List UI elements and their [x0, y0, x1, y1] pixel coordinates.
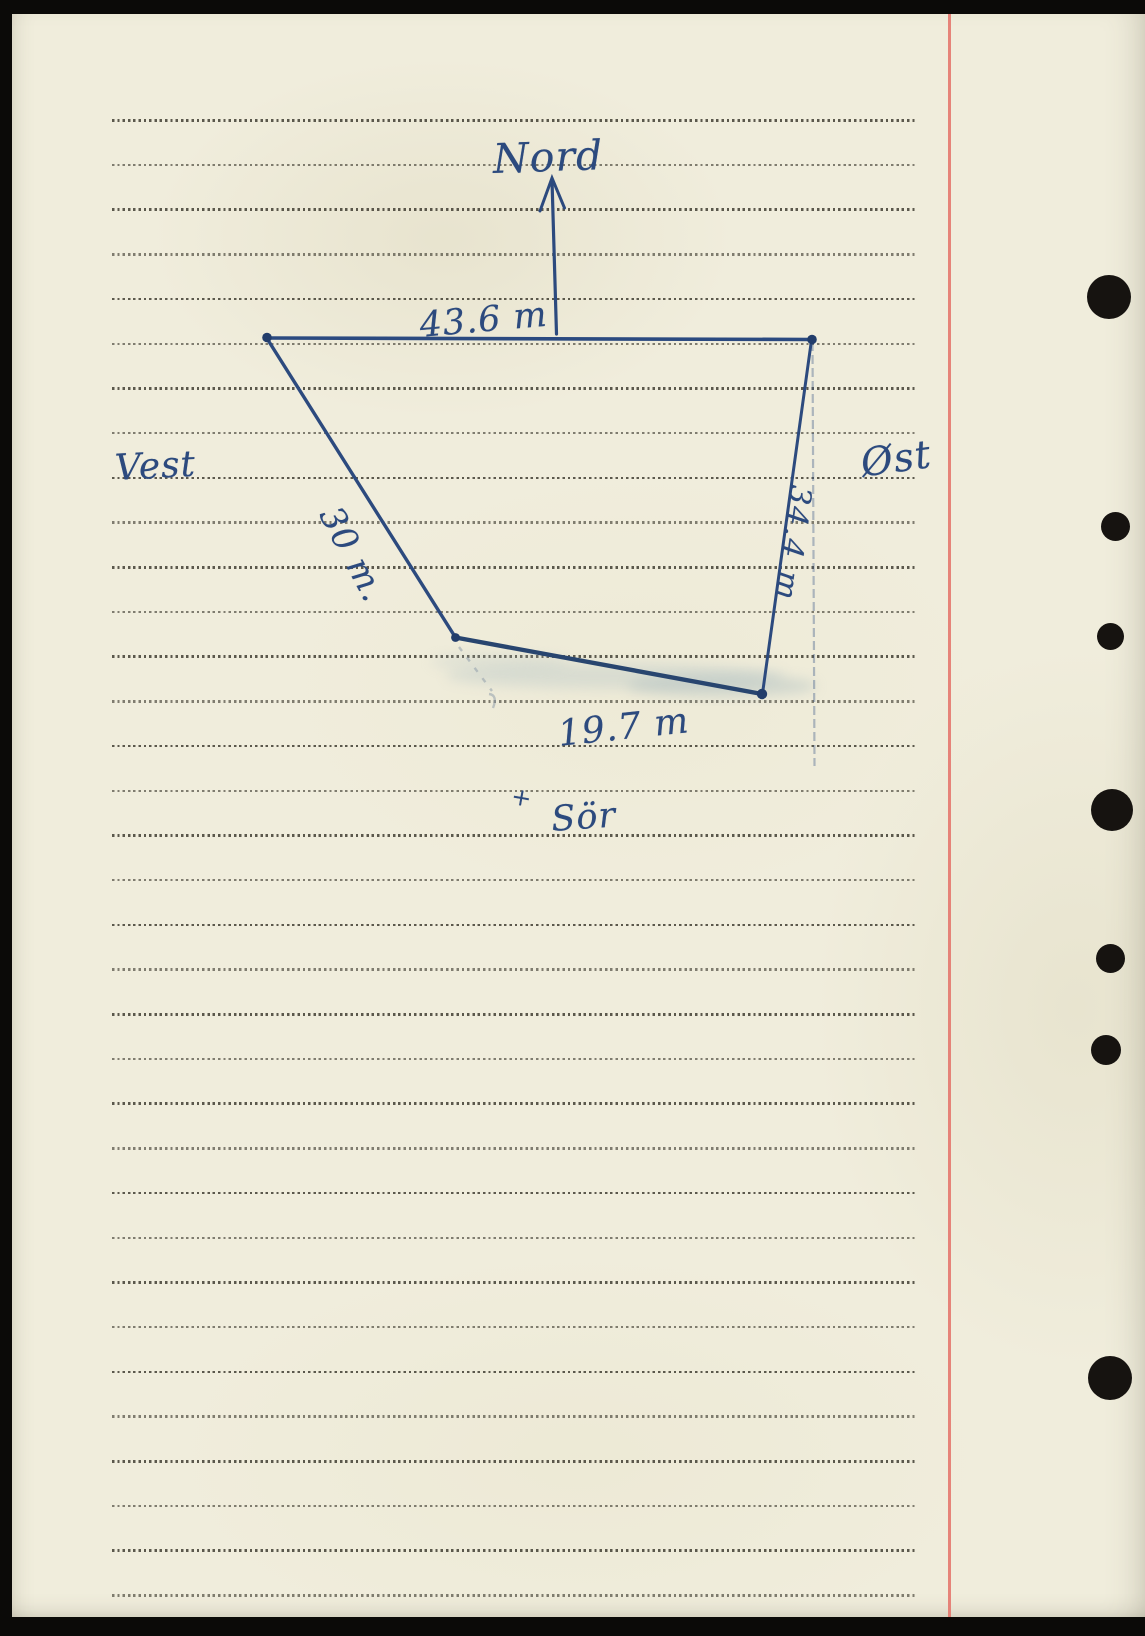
- punch-hole: [1088, 1356, 1132, 1400]
- south-label: Sör: [550, 795, 617, 839]
- punch-hole: [1097, 623, 1124, 650]
- scan-border-bottom: [0, 1617, 1145, 1636]
- scan-border-left: [0, 0, 12, 1636]
- punch-hole: [1101, 512, 1130, 541]
- punch-hole: [1096, 944, 1125, 973]
- south-direction-line: [813, 342, 815, 766]
- plot-side-north: [267, 338, 812, 340]
- paper: Nord 43.6 m Vest Øst 30 m. 34.4 m 19.7 m…: [12, 14, 1145, 1617]
- scan-border-top: [0, 0, 1145, 14]
- punch-hole: [1087, 275, 1131, 319]
- punch-hole: [1091, 789, 1133, 831]
- west-label: Vest: [114, 444, 197, 489]
- punch-hole: [1091, 1035, 1121, 1065]
- notebook-page-scan: Nord 43.6 m Vest Øst 30 m. 34.4 m 19.7 m…: [0, 0, 1145, 1636]
- north-label: Nord: [492, 131, 604, 183]
